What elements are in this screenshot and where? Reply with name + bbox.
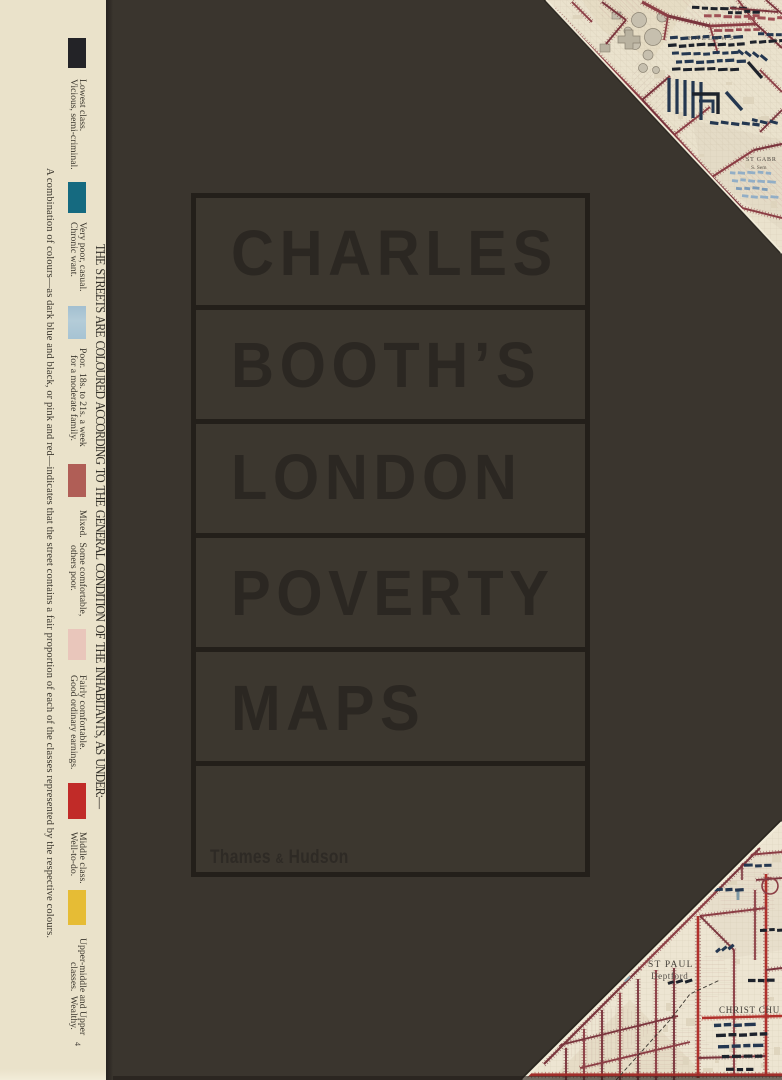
svg-text:ST PAUL: ST PAUL [648, 960, 694, 970]
svg-text:CHRIST CHU: CHRIST CHU [719, 1005, 780, 1015]
svg-text:HALLOWS: HALLOWS [688, 35, 735, 42]
svg-text:S. Sem: S. Sem [751, 165, 767, 171]
svg-text:A combination of colours—as da: A combination of colours—as dark blue an… [44, 168, 55, 938]
svg-text:ST GABR: ST GABR [746, 157, 777, 163]
svg-text:Deptford: Deptford [651, 971, 688, 981]
svg-text:THE STREETS ARE COLOURED A: THE STREETS ARE COLOURED ACCORDING TO TH… [93, 244, 109, 810]
